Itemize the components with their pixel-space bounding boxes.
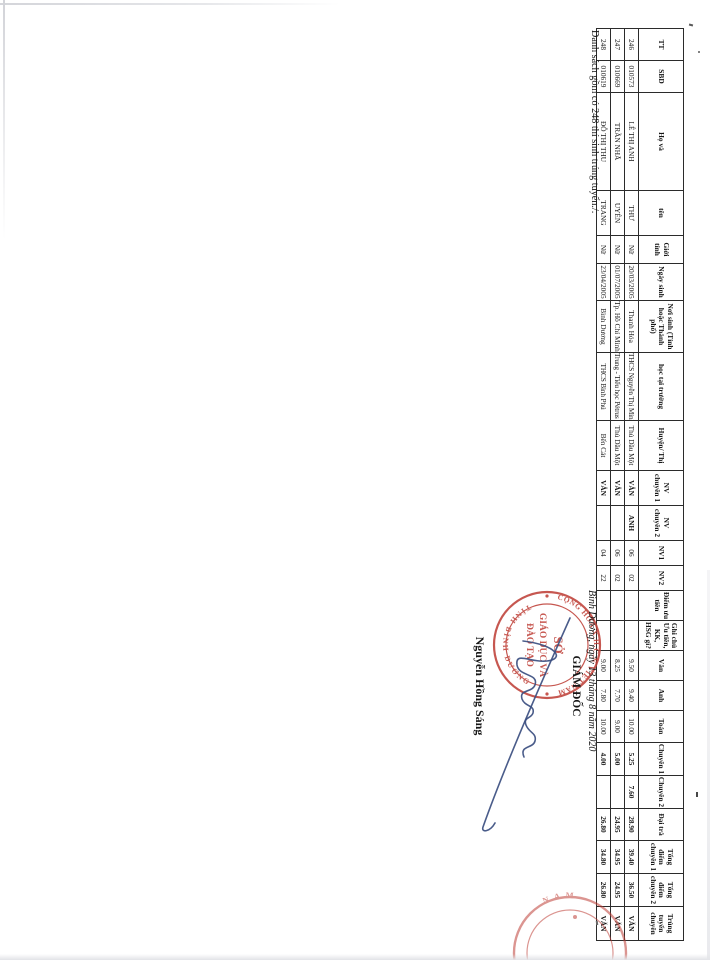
partial-stamp-outer-ring bbox=[514, 897, 626, 960]
table-cell: 010573 bbox=[625, 61, 639, 93]
table-header-cell: Ghi chú Ưu tiên, KK, HSG gì? bbox=[639, 621, 684, 651]
table-cell: THCS Bình Phú bbox=[597, 353, 611, 421]
table-cell: 9.50 bbox=[625, 651, 639, 681]
table-header-cell: TT bbox=[639, 29, 684, 61]
table-header-cell: tên bbox=[639, 191, 684, 236]
table-cell: 10.00 bbox=[625, 711, 639, 743]
table-cell bbox=[611, 506, 625, 541]
table-cell: Bến Cát bbox=[597, 421, 611, 471]
date-line: Bình Dương, ngày 13 tháng 8 năm 2020 bbox=[586, 590, 597, 790]
signature-body bbox=[517, 641, 557, 757]
table-cell: THCS Nguyễn Thị Minh Khai bbox=[625, 353, 639, 421]
table-cell bbox=[611, 776, 625, 809]
table-row: 246010573LÊ THỊ ANHTHƯNữ20/03/2005Thanh … bbox=[625, 29, 639, 941]
table-cell: Tp. Hồ Chí Minh bbox=[611, 301, 625, 353]
partial-stamp-inner-ring bbox=[527, 910, 613, 960]
table-header-cell: Giới tính bbox=[639, 236, 684, 264]
table-cell: 02 bbox=[611, 566, 625, 591]
table-cell: LÊ THỊ ANH bbox=[625, 93, 639, 191]
table-cell: 02 bbox=[625, 566, 639, 591]
table-cell: 010669 bbox=[611, 61, 625, 93]
table-cell bbox=[625, 621, 639, 651]
table-header-cell: Họ và bbox=[639, 93, 684, 191]
ink-speck bbox=[698, 51, 700, 53]
table-cell: 246 bbox=[625, 29, 639, 61]
table-cell: 4.00 bbox=[597, 743, 611, 776]
table-header-cell: học tại trường bbox=[639, 353, 684, 421]
table-cell: 24.95 bbox=[611, 809, 625, 841]
table-cell: Thủ Dầu Một bbox=[611, 421, 625, 471]
table-cell: 06 bbox=[625, 541, 639, 566]
table-header-cell: Toán bbox=[639, 711, 684, 743]
partial-edge-stamp: NAM bbox=[508, 890, 632, 960]
table-header-cell: Trúng tuyển chuyên bbox=[639, 907, 684, 941]
table-header-cell: Chuyên 1 bbox=[639, 743, 684, 776]
table-cell: TRẦN NHÃ bbox=[611, 93, 625, 191]
table-header-cell: Đại trà bbox=[639, 809, 684, 841]
table-cell: 01/07/2005 bbox=[611, 264, 625, 301]
table-header-cell: NV chuyên 1 bbox=[639, 471, 684, 506]
table-cell: 247 bbox=[611, 29, 625, 61]
table-cell: 06 bbox=[611, 541, 625, 566]
signer-title: GIÁM ĐỐC bbox=[570, 626, 582, 746]
table-header-cell: Văn bbox=[639, 651, 684, 681]
table-cell: 9.00 bbox=[611, 711, 625, 743]
table-cell bbox=[611, 591, 625, 621]
table-cell: 28.90 bbox=[625, 809, 639, 841]
table-cell: Nữ bbox=[625, 236, 639, 264]
table-cell: 34.95 bbox=[611, 841, 625, 874]
table-cell: 9.40 bbox=[625, 681, 639, 711]
table-header-cell: Anh bbox=[639, 681, 684, 711]
table-row: 247010669TRẦN NHÃUYÊNNữ01/07/2005Tp. Hồ … bbox=[611, 29, 625, 941]
table-cell: Nữ bbox=[611, 236, 625, 264]
table-cell: 7.60 bbox=[625, 776, 639, 809]
table-cell: Trung - Tiểu học Pétrus Ký bbox=[611, 353, 625, 421]
table-cell: 7.70 bbox=[611, 681, 625, 711]
table-header-cell: Tổng điểm chuyên 2 bbox=[639, 874, 684, 907]
table-cell bbox=[597, 776, 611, 809]
table-cell: 39.40 bbox=[625, 841, 639, 874]
signer-name: Nguyễn Hồng Sáng bbox=[472, 616, 487, 756]
table-header-cell: Huyện/ Thị bbox=[639, 421, 684, 471]
document-landscape-page: TTSBDHọ vàtênGiới tínhNgày sinhNơi sinh … bbox=[0, 0, 710, 960]
table-header-cell: NV2 bbox=[639, 566, 684, 591]
table-cell: 20/03/2005 bbox=[625, 264, 639, 301]
table-cell: VĂN bbox=[625, 471, 639, 506]
table-header-cell: NV chuyên 2 bbox=[639, 506, 684, 541]
table-cell: THƯ bbox=[625, 191, 639, 236]
table-cell bbox=[611, 621, 625, 651]
table-cell: VĂN bbox=[611, 471, 625, 506]
table-header-cell: NV1 bbox=[639, 541, 684, 566]
table-cell: Thủ Dầu Một bbox=[625, 421, 639, 471]
table-cell: Nữ bbox=[597, 236, 611, 264]
partial-stamp-text: NAM bbox=[541, 890, 579, 906]
table-header-cell: Ngày sinh bbox=[639, 264, 684, 301]
table-cell: 26.80 bbox=[597, 809, 611, 841]
table-header-cell: Điểm ưu tiên bbox=[639, 591, 684, 621]
table-cell: 23/04/2005 bbox=[597, 264, 611, 301]
table-cell: 04 bbox=[597, 541, 611, 566]
table-cell bbox=[625, 591, 639, 621]
table-cell: 34.80 bbox=[597, 841, 611, 874]
table-header-cell: Tổng điểm chuyên 1 bbox=[639, 841, 684, 874]
svg-text:NAM: NAM bbox=[541, 890, 579, 906]
table-cell: Thanh Hóa bbox=[625, 301, 639, 353]
table-cell: Bình Dương bbox=[597, 301, 611, 353]
admission-table: TTSBDHọ vàtênGiới tínhNgày sinhNơi sinh … bbox=[596, 28, 684, 941]
table-cell bbox=[597, 506, 611, 541]
table-cell: 10.00 bbox=[597, 711, 611, 743]
table-cell: ANH bbox=[625, 506, 639, 541]
scanned-page: TTSBDHọ vàtênGiới tínhNgày sinhNơi sinh … bbox=[0, 0, 710, 960]
table-cell: 5.00 bbox=[611, 743, 625, 776]
table-cell: 8.25 bbox=[611, 651, 625, 681]
table-cell: UYÊN bbox=[611, 191, 625, 236]
table-cell: 5.25 bbox=[625, 743, 639, 776]
table-cell: VĂN bbox=[597, 471, 611, 506]
partial-stamp-dot bbox=[573, 915, 577, 919]
table-header-cell: Nơi sinh (Tỉnh hoặc Thành phố) bbox=[639, 301, 684, 353]
footer-note: Danh sách gồm có 248 thí sinh trúng tuyể… bbox=[589, 30, 600, 213]
ink-speck bbox=[689, 24, 693, 27]
ink-speck bbox=[696, 792, 698, 797]
table-header-cell: SBD bbox=[639, 61, 684, 93]
table-header-cell: Chuyên 2 bbox=[639, 776, 684, 809]
